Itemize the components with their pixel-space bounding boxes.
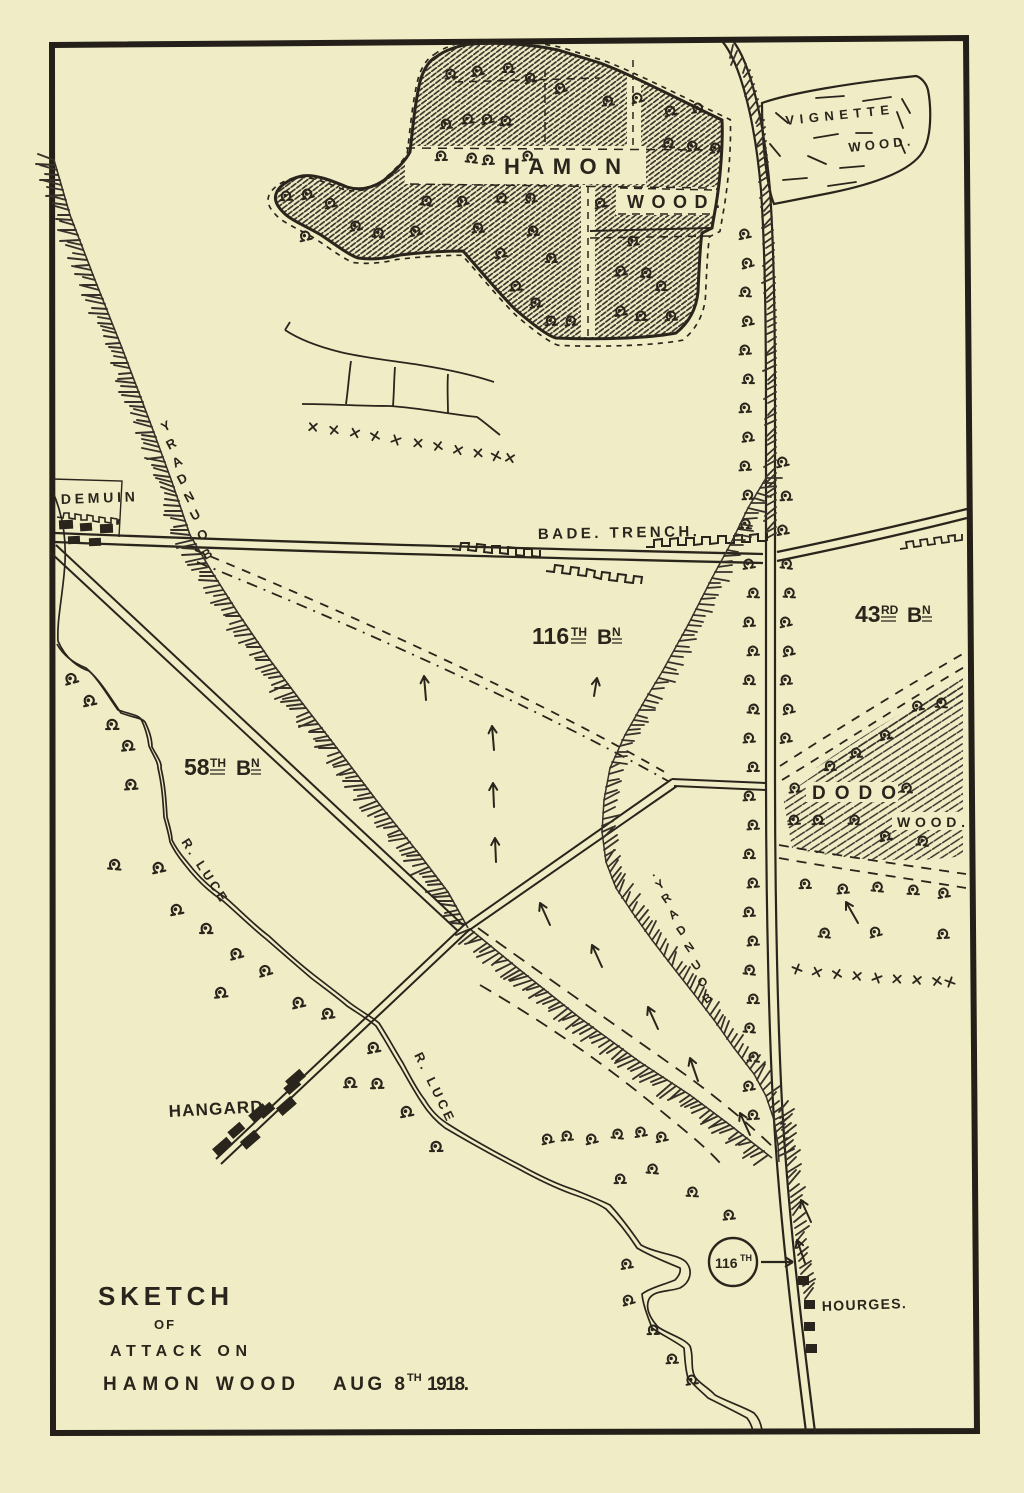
svg-text:116: 116 [715,1255,738,1271]
svg-text:WOOD.: WOOD. [897,814,965,830]
svg-text:N: N [251,756,260,770]
svg-text:N: N [922,603,931,617]
svg-text:WOOD.: WOOD. [627,192,720,212]
svg-text:AUG 8: AUG 8 [333,1374,405,1395]
svg-text:116: 116 [532,623,569,649]
svg-text:BADE. TRENCH.: BADE. TRENCH. [538,523,697,543]
svg-text:TH: TH [210,756,226,770]
svg-text:OF: OF [154,1317,176,1332]
svg-text:58: 58 [184,754,210,780]
svg-text:B: B [236,757,251,780]
svg-text:TH: TH [571,625,587,639]
svg-text:B: B [597,626,612,649]
svg-text:ATTACK ON: ATTACK ON [110,1343,247,1360]
svg-text:B: B [907,604,922,627]
svg-text:TH: TH [407,1372,422,1384]
svg-text:43: 43 [855,601,881,627]
svg-text:N: N [612,625,621,639]
svg-text:RD: RD [881,603,899,617]
svg-text:1918.: 1918. [427,1374,469,1395]
svg-text:TH: TH [740,1253,752,1263]
svg-text:HOURGES.: HOURGES. [822,1295,907,1314]
